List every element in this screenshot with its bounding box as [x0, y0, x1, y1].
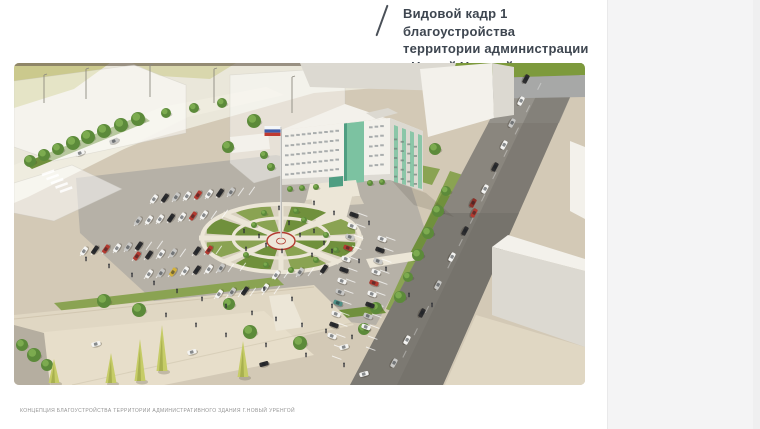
entrance-door — [329, 176, 343, 188]
viewer-background-panel — [607, 0, 760, 429]
slide-footer-caption: КОНЦЕПЦИЯ БЛАГОУСТРОЙСТВА ТЕРРИТОРИИ АДМ… — [20, 408, 295, 414]
scrollbar-track — [753, 0, 760, 429]
architectural-rendering — [14, 63, 585, 385]
slash-icon — [375, 5, 388, 37]
slide-title-line-2: территории администрации — [403, 40, 613, 58]
slide-title-line-1: Видовой кадр 1 благоустройства — [403, 5, 613, 40]
presentation-page: Видовой кадр 1 благоустройства территори… — [0, 0, 760, 429]
